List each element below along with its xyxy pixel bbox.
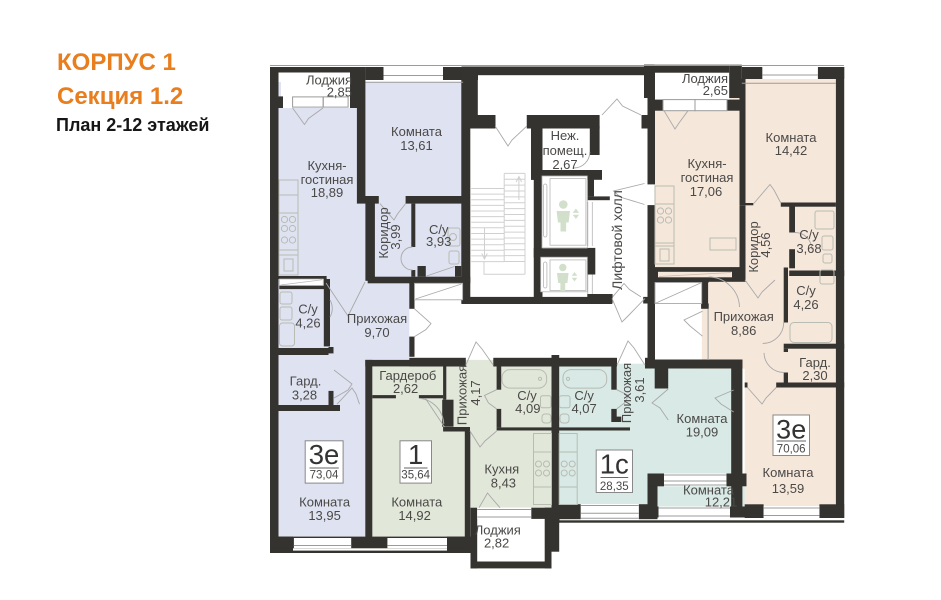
svg-text:18,89: 18,89	[311, 185, 344, 200]
svg-text:Кухня-: Кухня-	[687, 156, 726, 171]
svg-text:Комната: Комната	[763, 465, 815, 480]
svg-text:2,30: 2,30	[802, 368, 827, 383]
svg-text:2,65: 2,65	[703, 83, 728, 98]
svg-text:19,09: 19,09	[686, 425, 719, 440]
svg-text:3,68: 3,68	[796, 241, 821, 256]
svg-text:Секция 1.2: Секция 1.2	[57, 83, 183, 110]
svg-text:С/у: С/у	[298, 302, 318, 317]
svg-text:4,17: 4,17	[468, 380, 483, 405]
svg-text:Лифтовой холл: Лифтовой холл	[609, 190, 625, 290]
svg-text:помещ.: помещ.	[543, 143, 588, 158]
svg-text:3,28: 3,28	[292, 388, 317, 403]
svg-text:28,35: 28,35	[600, 481, 629, 493]
svg-text:2,67: 2,67	[552, 157, 577, 172]
svg-text:4,26: 4,26	[793, 297, 818, 312]
svg-text:Гард.: Гард.	[290, 374, 322, 389]
svg-text:С/у: С/у	[796, 283, 816, 298]
svg-text:73,04: 73,04	[310, 470, 339, 482]
svg-text:2,82: 2,82	[484, 536, 509, 551]
svg-text:4,26: 4,26	[295, 316, 320, 331]
svg-text:С/у: С/у	[799, 227, 819, 242]
svg-text:4,56: 4,56	[758, 232, 773, 257]
svg-text:8,43: 8,43	[491, 476, 516, 491]
svg-text:3,61: 3,61	[632, 377, 647, 402]
svg-text:План 2-12 этажей: План 2-12 этажей	[56, 115, 209, 135]
svg-text:3е: 3е	[776, 415, 806, 445]
svg-text:Прихожая: Прихожая	[714, 309, 774, 324]
svg-text:13,61: 13,61	[400, 138, 433, 153]
svg-text:Прихожая: Прихожая	[347, 311, 407, 326]
svg-text:1с: 1с	[600, 449, 629, 480]
svg-text:2,85: 2,85	[327, 85, 352, 100]
svg-text:70,06: 70,06	[777, 444, 806, 456]
svg-text:1: 1	[408, 439, 423, 470]
svg-text:12,21: 12,21	[705, 495, 738, 510]
svg-text:4,09: 4,09	[515, 401, 540, 416]
svg-text:КОРПУС 1: КОРПУС 1	[57, 49, 176, 76]
svg-text:2,62: 2,62	[393, 381, 418, 396]
svg-text:3,99: 3,99	[388, 224, 403, 249]
svg-text:13,95: 13,95	[308, 508, 341, 523]
svg-text:3,93: 3,93	[426, 234, 451, 249]
svg-text:Кухня: Кухня	[484, 462, 519, 477]
svg-text:Неж.: Неж.	[551, 128, 580, 143]
svg-text:13,59: 13,59	[772, 481, 805, 496]
svg-text:14,92: 14,92	[398, 508, 431, 523]
svg-text:3е: 3е	[309, 439, 340, 470]
svg-text:8,86: 8,86	[731, 323, 756, 338]
svg-text:4,07: 4,07	[571, 401, 596, 416]
svg-text:17,06: 17,06	[690, 184, 723, 199]
svg-text:9,70: 9,70	[364, 325, 389, 340]
svg-text:14,42: 14,42	[775, 143, 808, 158]
svg-text:Кухня-: Кухня-	[307, 158, 346, 173]
svg-text:35,64: 35,64	[401, 470, 430, 482]
svg-text:Комната: Комната	[391, 124, 443, 139]
svg-text:гостиная: гостиная	[681, 170, 734, 185]
